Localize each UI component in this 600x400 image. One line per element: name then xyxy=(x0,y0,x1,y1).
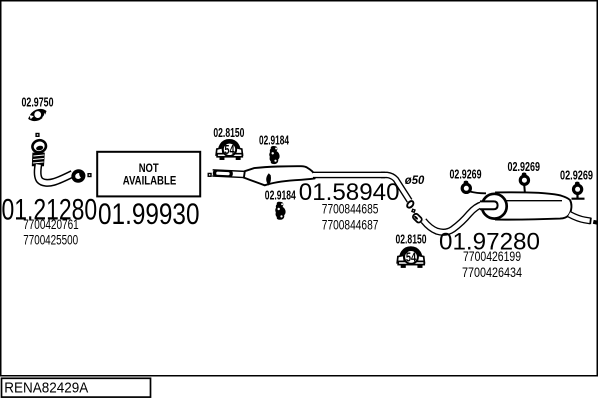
svg-text:7700425500: 7700425500 xyxy=(23,232,78,248)
svg-text:02.8150: 02.8150 xyxy=(396,231,427,246)
svg-text:7700844687: 7700844687 xyxy=(322,217,379,233)
svg-text:01.99930: 01.99930 xyxy=(98,198,200,231)
svg-text:02.9269: 02.9269 xyxy=(560,167,593,182)
svg-text:7700426434: 7700426434 xyxy=(462,264,522,280)
svg-text:AVAILABLE: AVAILABLE xyxy=(123,173,177,187)
svg-text:RENA82429A: RENA82429A xyxy=(4,380,88,397)
svg-text:02.9269: 02.9269 xyxy=(508,159,541,174)
svg-text:02.8150: 02.8150 xyxy=(213,125,244,140)
svg-text:02.9750: 02.9750 xyxy=(22,95,54,110)
svg-text:02.9184: 02.9184 xyxy=(265,188,297,203)
svg-text:02.9269: 02.9269 xyxy=(450,167,482,182)
svg-text:7700844685: 7700844685 xyxy=(322,200,379,216)
svg-text:7700420761: 7700420761 xyxy=(23,216,79,232)
svg-text:02.9184: 02.9184 xyxy=(259,133,289,148)
svg-text:7700426199: 7700426199 xyxy=(463,248,521,264)
svg-text:ø50: ø50 xyxy=(405,173,425,187)
